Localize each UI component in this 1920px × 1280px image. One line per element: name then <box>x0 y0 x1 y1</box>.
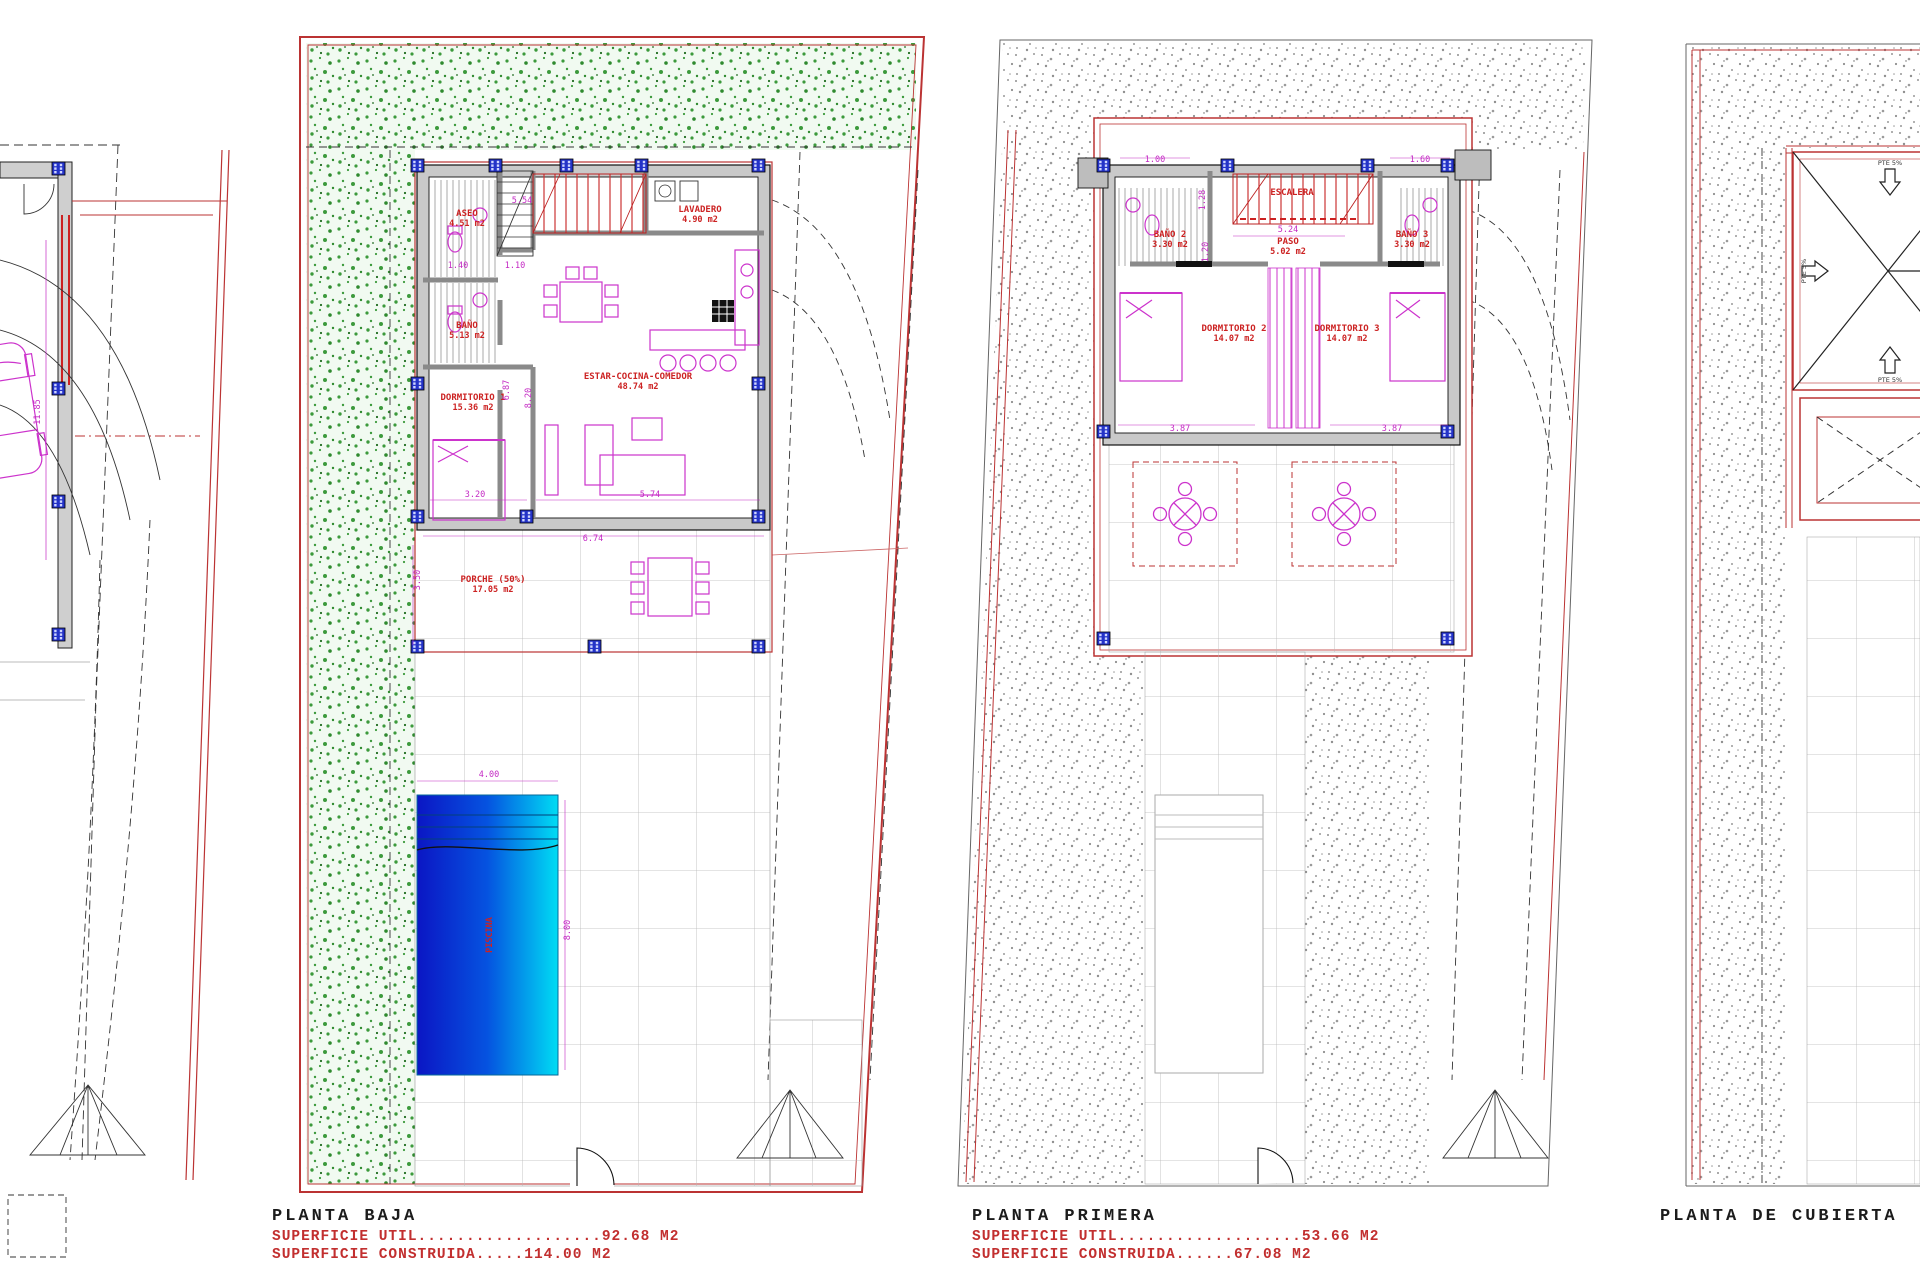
dimension-label: 1.10 <box>505 261 525 271</box>
column-marker <box>752 159 765 172</box>
stair-flight-red <box>1233 174 1373 224</box>
superficie-construida-baja: SUPERFICIE CONSTRUIDA.....114.00 M2 <box>272 1247 612 1263</box>
porch-roof <box>1800 398 1920 520</box>
swimming-pool: PISCINA <box>417 795 558 1075</box>
paving-grid <box>770 1020 862 1186</box>
stipple-area <box>1098 652 1145 1184</box>
neighbor-dashed-line <box>768 152 918 1080</box>
room-label: ASEO <box>456 209 478 219</box>
boundary-line <box>72 201 227 215</box>
appliance <box>712 300 734 322</box>
planta-cubierta-panel: PTE 5% PTE 5% PTE 5% <box>1686 44 1920 1186</box>
stipple-area <box>1305 652 1430 1184</box>
dashed-box <box>8 1195 66 1257</box>
column-marker <box>1441 632 1454 645</box>
room-label: DORMITORIO 3 <box>1314 324 1379 334</box>
room-label: DORMITORIO 2 <box>1201 324 1266 334</box>
superficie-util-baja: SUPERFICIE UTIL...................92.68 … <box>272 1229 679 1245</box>
plot-dashed-line <box>82 145 118 1160</box>
room-area: 48.74 m2 <box>618 382 659 392</box>
wardrobe <box>1268 268 1292 428</box>
site-plan-panel: 11.85 <box>0 145 229 1257</box>
pool-ghost-outline <box>1155 795 1263 1073</box>
bath2-floor <box>1118 188 1210 266</box>
dimension-label: 3.50 <box>413 570 423 590</box>
turning-arc-dashed <box>70 520 150 1160</box>
roof-plan: PTE 5% PTE 5% PTE 5% <box>1793 152 1920 390</box>
room-label: ESTAR-COCINA-COMEDOR <box>584 372 693 382</box>
room-area: 14.07 m2 <box>1214 334 1255 344</box>
column-marker <box>411 159 424 172</box>
column-marker <box>560 159 573 172</box>
column-marker <box>411 510 424 523</box>
turning-arc <box>0 260 160 555</box>
column-marker <box>1361 159 1374 172</box>
column-marker <box>1221 159 1234 172</box>
column-marker <box>489 159 502 172</box>
room-area: 17.05 m2 <box>473 585 514 595</box>
room-label: BAÑO 3 <box>1396 229 1429 240</box>
room-area: 15.36 m2 <box>453 403 494 413</box>
stair-flight-red <box>533 174 646 233</box>
floorplan-drawing: 11.85 <box>0 0 1920 1280</box>
dimension-label: 3.87 <box>1382 424 1402 434</box>
door-swing <box>24 184 54 214</box>
column-marker <box>52 382 65 395</box>
dimension-label: 1.60 <box>1410 155 1430 165</box>
plan-title-cubierta: PLANTA DE CUBIERTA <box>1660 1207 1898 1226</box>
slope-label: PTE 5% <box>1800 259 1808 283</box>
column-marker <box>52 495 65 508</box>
dimension-label: 8.00 <box>563 920 573 940</box>
room-label: ESCALERA <box>1270 188 1314 198</box>
paving-grid <box>1807 537 1920 1184</box>
planta-baja-panel: PISCINA ASEO 4.51 m2 BAÑO 5.13 m2 DORMIT… <box>300 37 924 1192</box>
column-marker <box>1097 425 1110 438</box>
stipple-area <box>962 150 1098 1184</box>
pool-label: PISCINA <box>485 917 495 953</box>
plan-title-baja: PLANTA BAJA <box>272 1207 417 1226</box>
wall-stub <box>1455 150 1491 180</box>
column-marker <box>1441 425 1454 438</box>
room-area: 4.90 m2 <box>682 215 718 225</box>
dimension-label: 4.00 <box>479 770 499 780</box>
drawing-sheet: 11.85 <box>0 0 1920 1280</box>
dimension-label: 3.20 <box>465 490 485 500</box>
room-label: DORMITORIO 1 <box>440 393 505 403</box>
superficie-util-primera: SUPERFICIE UTIL...................53.66 … <box>972 1229 1379 1245</box>
dimension-label: 5.54 <box>512 196 532 206</box>
dimension-label: 6.74 <box>583 534 603 544</box>
dimension-label: 5.74 <box>640 490 660 500</box>
dimension-label: 1.40 <box>448 261 468 271</box>
column-marker <box>411 377 424 390</box>
room-area: 14.07 m2 <box>1327 334 1368 344</box>
ramp-triangle <box>1443 1090 1548 1158</box>
dimension-label: 1.28 <box>1198 190 1208 210</box>
slope-label: PTE 5% <box>1878 376 1902 384</box>
room-label: PORCHE (50%) <box>460 575 525 585</box>
room-area: 4.51 m2 <box>449 219 485 229</box>
column-marker <box>52 162 65 175</box>
plot-boundary-red <box>186 150 229 1180</box>
column-marker <box>52 628 65 641</box>
plan-title-primera: PLANTA PRIMERA <box>972 1207 1157 1226</box>
column-marker <box>1441 159 1454 172</box>
column-marker <box>752 640 765 653</box>
room-label: PASO <box>1277 237 1299 247</box>
plot-boundary-red <box>1544 152 1584 1080</box>
neighbor-arc <box>1468 210 1570 470</box>
room-label: BAÑO <box>456 320 478 331</box>
column-marker <box>520 510 533 523</box>
column-marker <box>1097 159 1110 172</box>
room-area: 3.30 m2 <box>1152 240 1188 250</box>
slope-label: PTE 5% <box>1878 159 1902 167</box>
neighbor-arc <box>772 200 890 460</box>
column-marker <box>752 377 765 390</box>
wardrobe <box>1296 268 1320 428</box>
dimension-label: 8.20 <box>524 388 534 408</box>
dimension-label: 6.87 <box>502 380 512 400</box>
dimension-label: 1.20 <box>1201 242 1211 262</box>
superficie-construida-primera: SUPERFICIE CONSTRUIDA......67.08 M2 <box>972 1247 1312 1263</box>
dimension-label: 11.85 <box>33 399 43 425</box>
room-label: BAÑO 2 <box>1154 229 1187 240</box>
ramp-triangle <box>30 1085 145 1155</box>
dimension-label: 3.87 <box>1170 424 1190 434</box>
plan-titles: PLANTA BAJA SUPERFICIE UTIL.............… <box>272 1207 1898 1263</box>
dimension-label: 5.24 <box>1278 225 1298 235</box>
column-marker <box>752 510 765 523</box>
column-marker <box>635 159 648 172</box>
room-label: LAVADERO <box>678 205 722 215</box>
column-marker <box>1097 632 1110 645</box>
boundary-tick <box>772 548 908 555</box>
column-marker <box>588 640 601 653</box>
room-area: 3.30 m2 <box>1394 240 1430 250</box>
terrace-grid <box>1109 445 1454 652</box>
paving-line <box>0 662 90 700</box>
room-area: 5.02 m2 <box>1270 247 1306 257</box>
dimension-label: 1.00 <box>1145 155 1165 165</box>
planta-primera-panel: BAÑO 2 3.30 m2 BAÑO 3 3.30 m2 DORMITORIO… <box>958 40 1592 1186</box>
room-area: 5.13 m2 <box>449 331 485 341</box>
